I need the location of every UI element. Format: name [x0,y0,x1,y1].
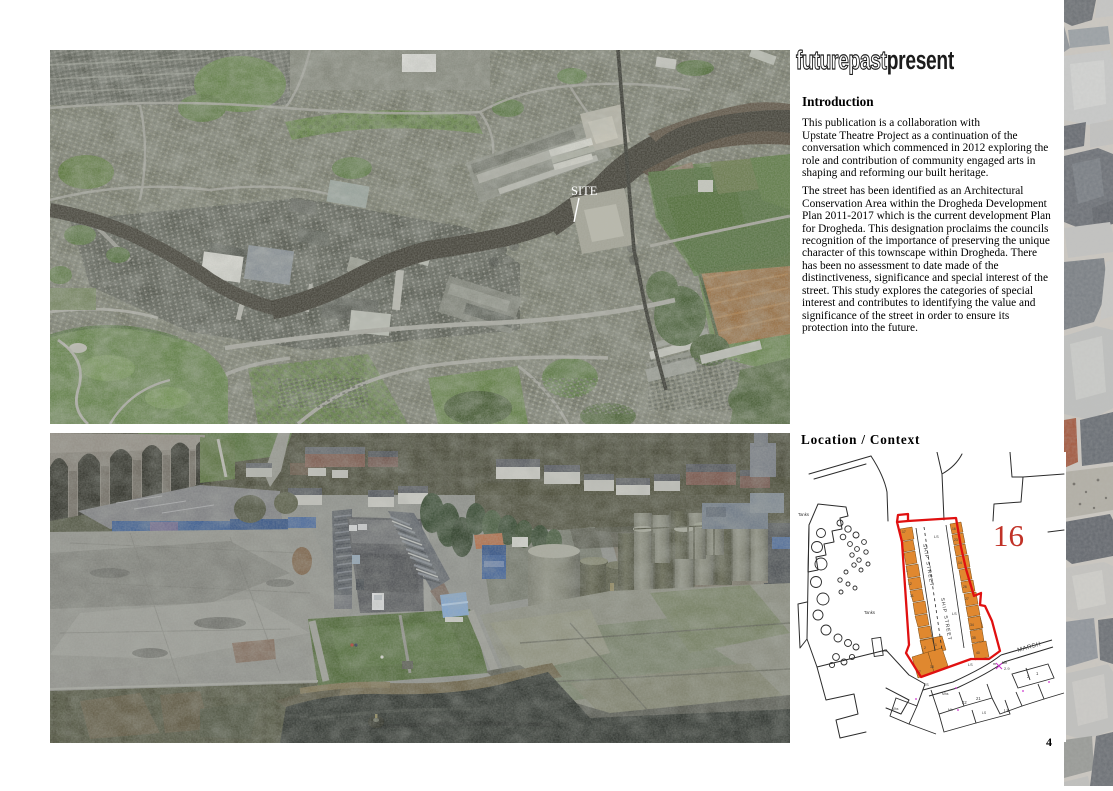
svg-text:Tanks: Tanks [864,610,875,615]
svg-text:LS: LS [934,535,939,539]
svg-text:16: 16 [993,518,1024,553]
svg-text:27: 27 [965,597,969,601]
svg-text:m: m [993,662,996,666]
svg-text:1: 1 [935,643,937,647]
svg-text:35: 35 [972,636,976,640]
svg-text:2: 2 [924,646,926,650]
svg-text:Tanks: Tanks [798,512,809,517]
svg-text:Mh: Mh [948,708,953,712]
svg-text:2.9: 2.9 [1004,666,1010,671]
svg-text:SITE: SITE [571,184,598,198]
svg-text:22: 22 [962,700,967,705]
svg-text:Mhs: Mhs [942,692,949,696]
svg-text:LS: LS [982,711,987,715]
svg-text:LS: LS [952,612,957,616]
svg-text:34: 34 [970,623,974,627]
svg-text:Mhs: Mhs [892,707,899,711]
svg-text:17: 17 [902,530,906,534]
svg-text:LS: LS [1004,708,1009,713]
svg-text:16: 16 [952,527,956,531]
svg-text:23: 23 [954,538,958,542]
svg-text:MB: MB [882,649,888,653]
svg-text:31: 31 [910,594,914,598]
svg-text:12: 12 [908,582,912,586]
svg-text:14: 14 [958,561,962,565]
svg-text:21: 21 [976,696,981,701]
svg-text:LS: LS [924,683,929,687]
svg-text:1: 1 [906,569,908,573]
svg-text:38: 38 [930,665,934,669]
svg-text:40: 40 [976,651,980,655]
svg-text:LS: LS [968,663,973,667]
svg-text:26: 26 [963,585,967,589]
